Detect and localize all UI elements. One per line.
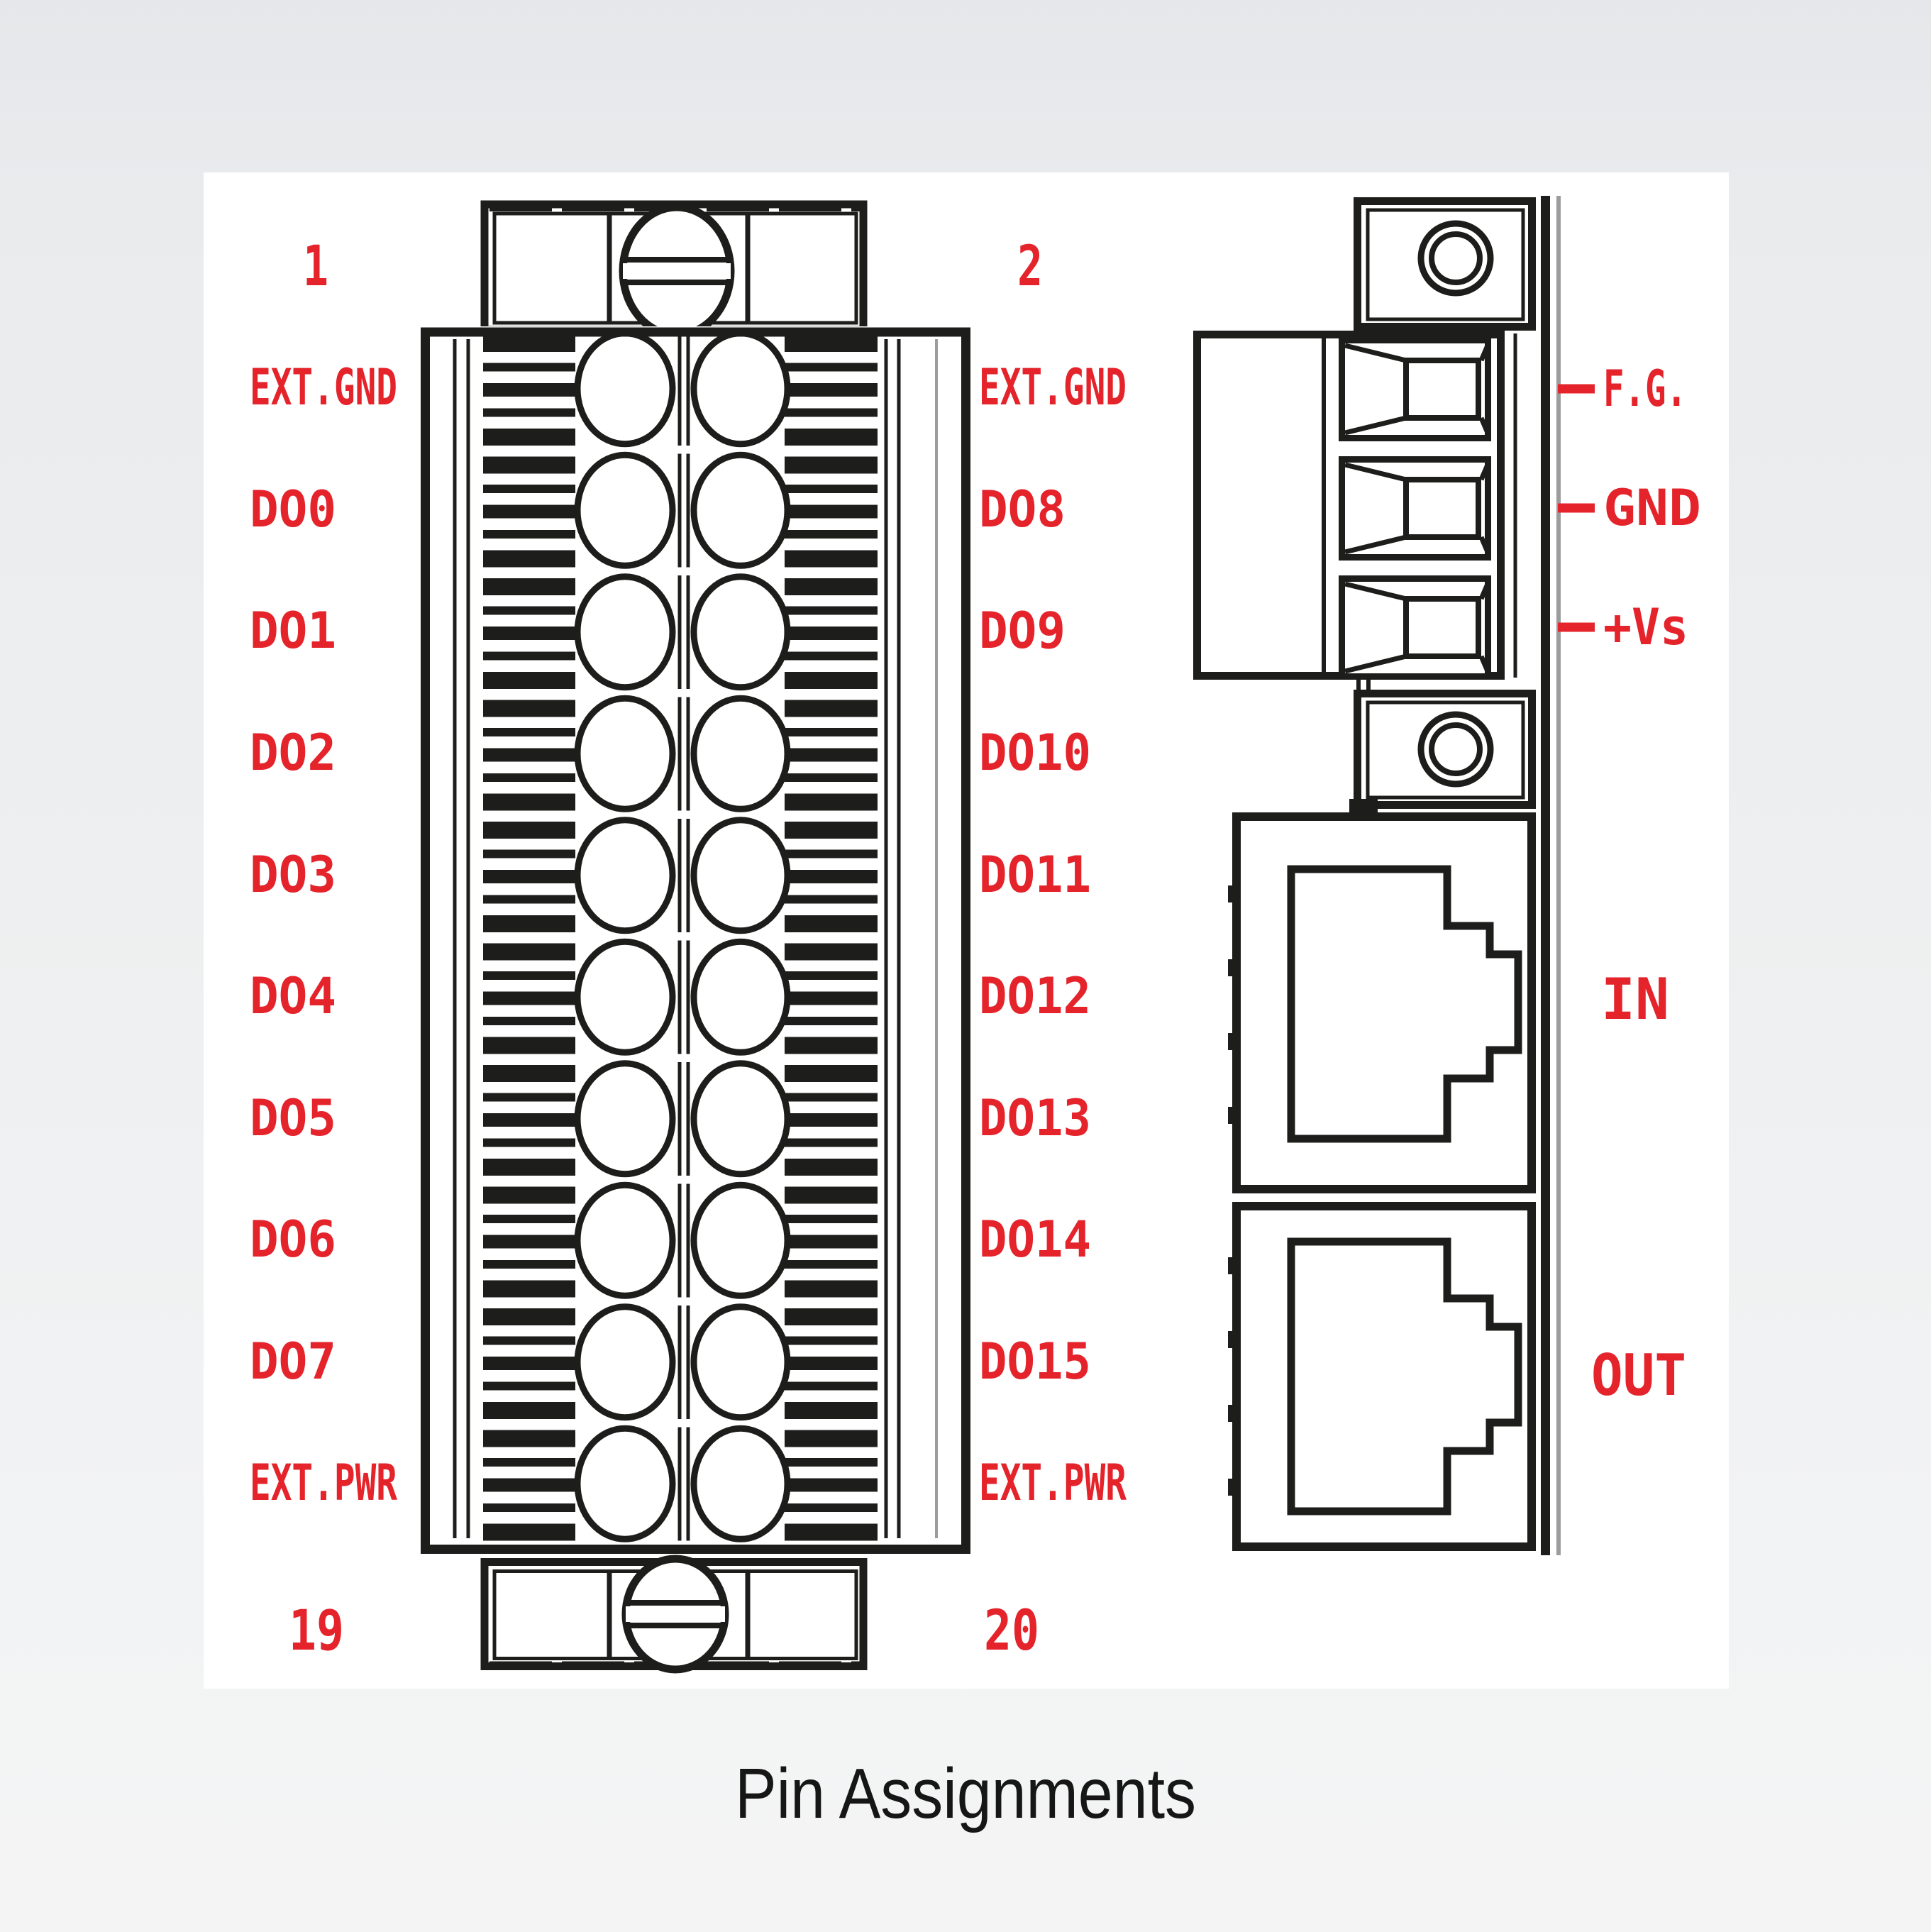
port-label-in: IN: [1601, 966, 1669, 1032]
bottom-screw-icon: [624, 1559, 726, 1669]
module-edge-rail: [1541, 196, 1550, 1555]
port-in-box: [1228, 817, 1532, 1189]
pin-label-right-do12: DO12: [979, 967, 1091, 1025]
figure-caption: Pin Assignments: [735, 1754, 1196, 1833]
pin-label-left-do0: DO0: [250, 480, 336, 539]
contact-rows: [426, 328, 962, 1545]
terminal-block-diagram: [421, 204, 966, 1669]
pin-label-right-do11: DO11: [979, 846, 1091, 904]
bottom-flange: [485, 1559, 863, 1669]
diagram-canvas: 1 2 19 20 EXT.GND DO0 DO1 DO2 DO3 DO4 DO…: [0, 0, 1931, 1932]
tick-vs: [1558, 623, 1595, 632]
pin-label-left-do5: DO5: [250, 1089, 336, 1147]
top-screw-hole-block: [1358, 202, 1532, 327]
pin-label-right-do14: DO14: [979, 1210, 1091, 1269]
power-connector: [1197, 333, 1516, 678]
top-screw-icon: [621, 207, 732, 335]
pin-label-right-ext-pwr: EXT.PWR: [979, 1454, 1127, 1512]
tick-fg: [1558, 385, 1595, 394]
tick-gnd: [1558, 504, 1595, 513]
pin-assignment-figure: 1 2 19 20 EXT.GND DO0 DO1 DO2 DO3 DO4 DO…: [0, 0, 1931, 1932]
pin-label-left-ext-gnd: EXT.GND: [250, 358, 397, 416]
pin-label-right-ext-gnd: EXT.GND: [979, 358, 1127, 416]
pin-label-right-do9: DO9: [979, 602, 1066, 660]
pin-label-left-do2: DO2: [250, 724, 336, 782]
pin-label-right-do8: DO8: [979, 480, 1066, 539]
power-label-gnd: GND: [1603, 479, 1701, 537]
pin-number-2: 2: [1017, 235, 1043, 299]
pin-label-left-do3: DO3: [250, 846, 336, 904]
pin-label-right-do10: DO10: [979, 724, 1091, 782]
power-label-fg: F.G.: [1603, 360, 1687, 418]
top-flange: [485, 204, 863, 335]
port-out-box: [1228, 1206, 1532, 1547]
pin-label-left-do1: DO1: [250, 602, 336, 660]
power-terminal-vs: [1342, 579, 1488, 677]
pin-number-19: 19: [289, 1599, 344, 1663]
pin-label-left-do7: DO7: [250, 1332, 336, 1391]
pin-label-left-do6: DO6: [250, 1210, 336, 1269]
pin-label-right-do13: DO13: [979, 1089, 1091, 1147]
power-terminal-fg: [1342, 341, 1488, 438]
pin-number-1: 1: [303, 235, 328, 299]
pin-number-20: 20: [984, 1599, 1039, 1663]
module-edge-rail-shadow: [1556, 196, 1561, 1555]
power-terminal-gnd: [1342, 460, 1488, 558]
terminal-body: [421, 326, 966, 1554]
pin-label-left-ext-pwr: EXT.PWR: [250, 1454, 398, 1512]
port-label-out: OUT: [1591, 1342, 1686, 1408]
pin-label-right-do15: DO15: [979, 1332, 1091, 1391]
pin-label-left-do4: DO4: [250, 967, 336, 1025]
mid-screw-hole-block: [1349, 678, 1532, 815]
power-label-vs: +Vs: [1603, 598, 1688, 656]
